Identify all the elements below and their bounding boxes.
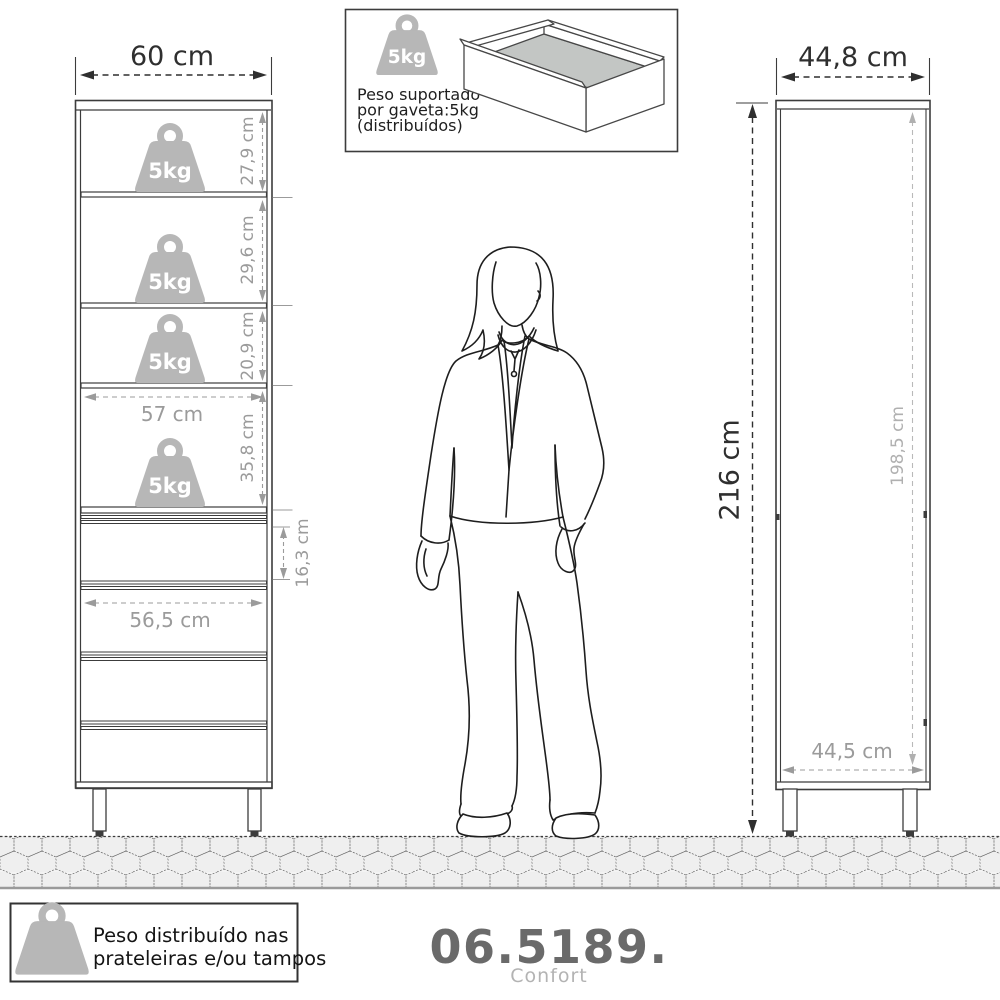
figure-right-shoe (552, 814, 599, 839)
ground-hex-pattern (0, 836, 1000, 888)
figure-right-arm (529, 339, 604, 519)
weight-label-4: 5kg (148, 474, 192, 498)
arrow-left (80, 71, 94, 80)
shelf-height-label-2: 29,6 cm (238, 215, 258, 284)
figure-right-leg-outer (563, 517, 601, 813)
inner-height-label: 198,5 cm (888, 406, 908, 486)
shelf-height-label-3: 20,9 cm (238, 311, 258, 380)
overall-height-label: 216 cm (715, 419, 746, 520)
figure-pendant (511, 350, 519, 371)
front-width-label: 60 cm (130, 41, 214, 72)
depth-label: 44,5 cm (811, 739, 892, 763)
arrow-right (253, 71, 267, 80)
shelf-note-line-1: Peso distribuído nas (93, 924, 289, 947)
figure-placket (506, 470, 509, 517)
weight-label-3: 5kg (148, 350, 192, 374)
product-identity: 06.5189. Confort (430, 920, 669, 987)
diagram-canvas: 5kg 5kg 5kg 5kg 60 cm 27,9 cm 29,6 cm (0, 0, 1000, 1000)
furniture-dimension-diagram: 5kg 5kg 5kg 5kg 60 cm 27,9 cm 29,6 cm (0, 0, 1000, 1000)
ground-strip (0, 836, 1000, 888)
figure-left-arm (421, 345, 498, 536)
side-width-label: 44,8 cm (798, 42, 908, 73)
human-figure (417, 247, 604, 838)
side-leg-back (903, 789, 917, 831)
shelf-capacity-note: Peso distribuído nas prateleiras e/ou ta… (11, 904, 327, 982)
hinge-mark (777, 514, 780, 520)
side-foot-front (786, 831, 794, 837)
drawer-width-label: 56,5 cm (129, 608, 210, 632)
arrow-down (748, 820, 757, 834)
arrow-left (781, 73, 795, 82)
side-width-dimension: 44,8 cm (777, 42, 930, 95)
arrow-down (280, 568, 287, 579)
figure-left-thumb (424, 549, 427, 576)
figure-left-shoe (457, 813, 510, 837)
shelf-height-label-1: 27,9 cm (238, 116, 258, 185)
figure-left-hand (417, 541, 449, 590)
hinge-mark (924, 719, 928, 726)
weight-label-1: 5kg (148, 159, 192, 183)
shelf-note-line-2: prateleiras e/ou tampos (93, 947, 326, 970)
shelf-height-label-4: 35,8 cm (238, 413, 258, 482)
drawer-note-weight-label: 5kg (388, 47, 426, 68)
figure-right-leg-inner (518, 592, 550, 800)
arrow-right (911, 73, 925, 82)
drawer-height-label: 16,3 cm (293, 518, 313, 587)
arrow-up (748, 104, 757, 118)
weight-label-2: 5kg (148, 270, 192, 294)
front-width-dimension: 60 cm (76, 41, 272, 95)
side-leg-front (783, 789, 797, 831)
drawer-note-line-3: (distribuídos) (357, 116, 463, 135)
product-line-name: Confort (510, 965, 588, 987)
figure-hair (462, 247, 558, 359)
front-foot-left (96, 831, 104, 837)
front-leg-left (93, 789, 106, 831)
side-foot-back (906, 831, 914, 837)
figure-left-leg-inner (512, 592, 518, 806)
inner-width-label: 57 cm (141, 402, 203, 426)
hinge-mark (924, 511, 928, 518)
front-foot-right (251, 831, 259, 837)
figure-left-leg-outer (450, 516, 469, 804)
figure-left-cuff (421, 536, 449, 543)
figure-pendant-bead (512, 372, 517, 377)
drawer-front-height-dimension (280, 527, 287, 579)
drawer-capacity-note: 5kg Peso suportado por gaveta:5kg (distr… (346, 10, 678, 152)
front-leg-right (248, 789, 261, 831)
arrow-up (280, 527, 287, 538)
